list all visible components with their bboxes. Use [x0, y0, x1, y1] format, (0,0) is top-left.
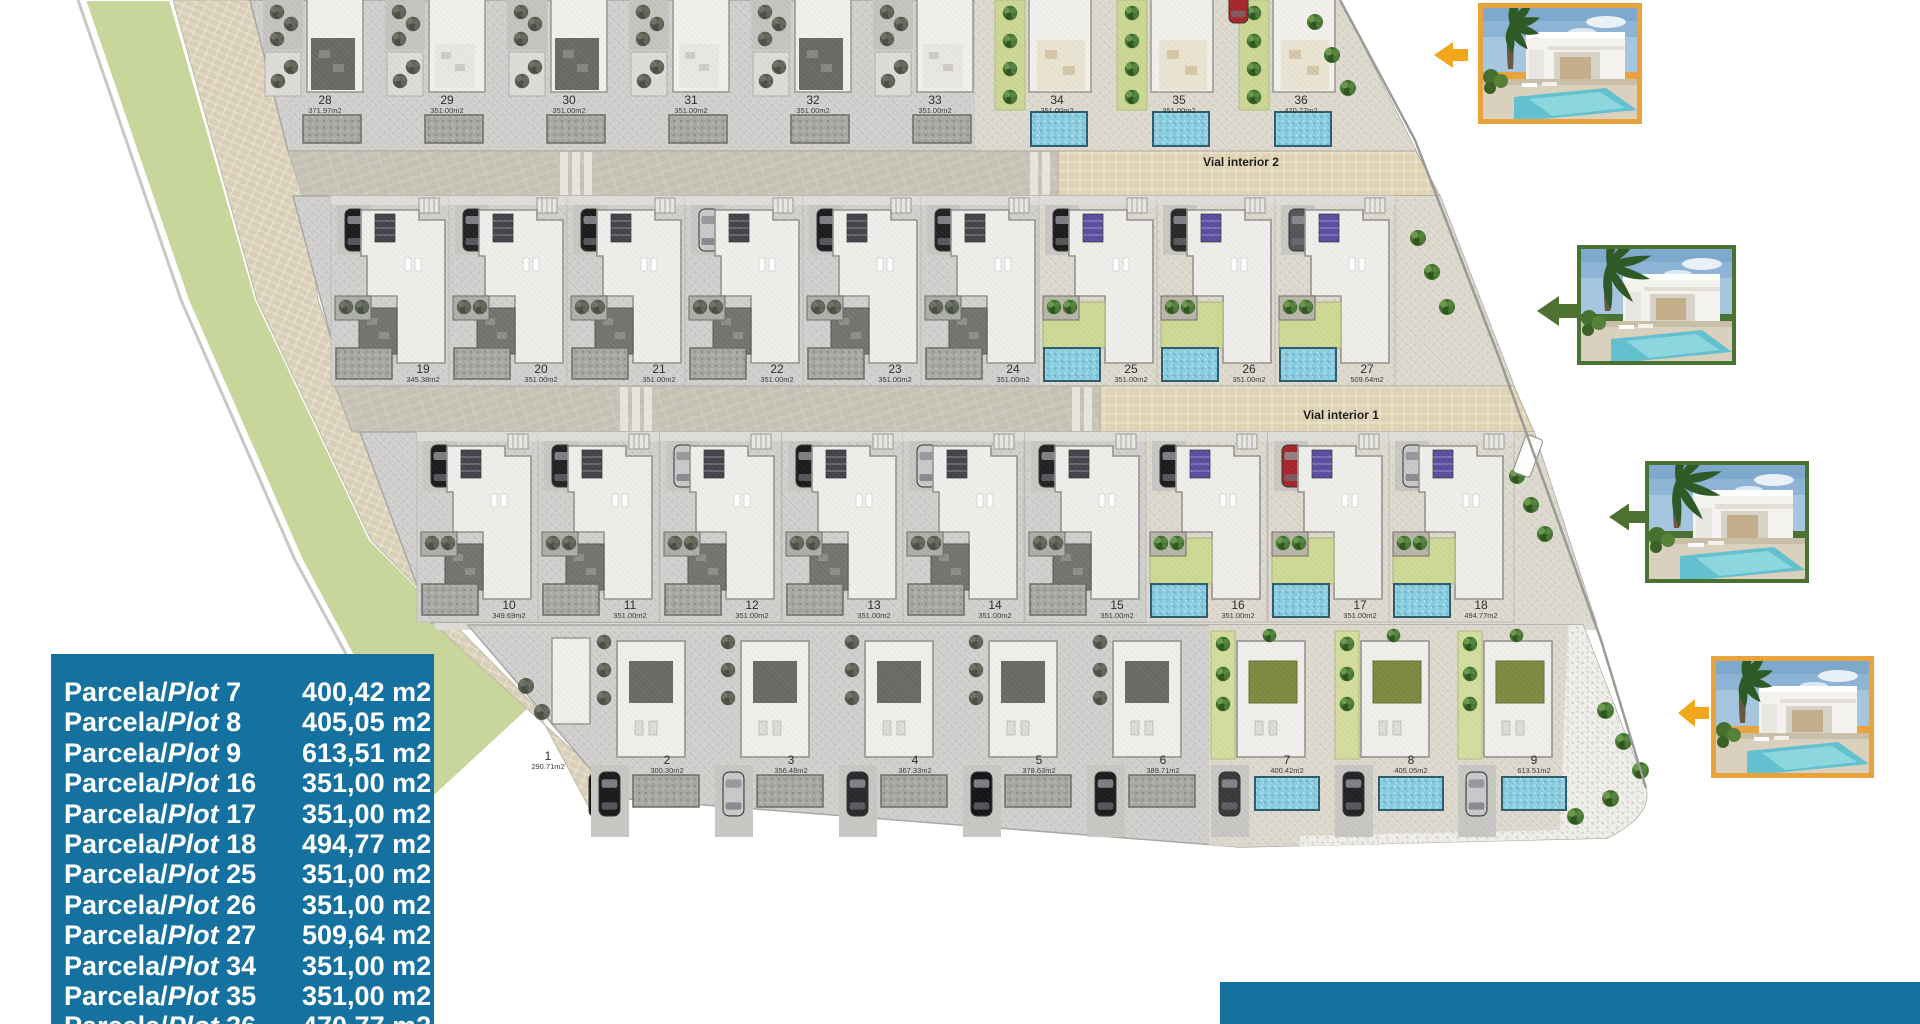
- svg-text:Vial interior 1: Vial interior 1: [1303, 408, 1379, 422]
- svg-text:1: 1: [545, 749, 552, 763]
- svg-text:Parcela/Plot 18: Parcela/Plot 18: [64, 829, 256, 859]
- svg-text:351,00 m2: 351,00 m2: [302, 768, 431, 798]
- svg-text:470,77 m2: 470,77 m2: [302, 1011, 431, 1024]
- svg-text:Vial interior 2: Vial interior 2: [1203, 155, 1279, 169]
- svg-text:Parcela/Plot 35: Parcela/Plot 35: [64, 981, 256, 1011]
- svg-text:Parcela/Plot 26: Parcela/Plot 26: [64, 890, 256, 920]
- svg-text:Parcela/Plot 27: Parcela/Plot 27: [64, 920, 256, 950]
- svg-text:509,64 m2: 509,64 m2: [302, 920, 431, 950]
- svg-text:Parcela/Plot 7: Parcela/Plot 7: [64, 677, 241, 707]
- svg-text:Parcela/Plot 16: Parcela/Plot 16: [64, 768, 256, 798]
- svg-text:351,00 m2: 351,00 m2: [302, 981, 431, 1011]
- svg-text:351,00 m2: 351,00 m2: [302, 799, 431, 829]
- svg-text:351,00 m2: 351,00 m2: [302, 890, 431, 920]
- svg-text:Parcela/Plot 8: Parcela/Plot 8: [64, 707, 241, 737]
- svg-text:351,00 m2: 351,00 m2: [302, 859, 431, 889]
- svg-text:290.71m2: 290.71m2: [531, 762, 564, 771]
- svg-text:Parcela/Plot 17: Parcela/Plot 17: [64, 799, 256, 829]
- svg-text:Parcela/Plot 34: Parcela/Plot 34: [64, 951, 256, 981]
- svg-text:405,05 m2: 405,05 m2: [302, 707, 431, 737]
- svg-text:613,51 m2: 613,51 m2: [302, 738, 431, 768]
- svg-text:Parcela/Plot 9: Parcela/Plot 9: [64, 738, 241, 768]
- svg-text:400,42 m2: 400,42 m2: [302, 677, 431, 707]
- svg-text:494,77 m2: 494,77 m2: [302, 829, 431, 859]
- svg-text:351,00 m2: 351,00 m2: [302, 951, 431, 981]
- svg-text:Parcela/Plot 25: Parcela/Plot 25: [64, 859, 256, 889]
- svg-text:Parcela/Plot 36: Parcela/Plot 36: [64, 1011, 256, 1024]
